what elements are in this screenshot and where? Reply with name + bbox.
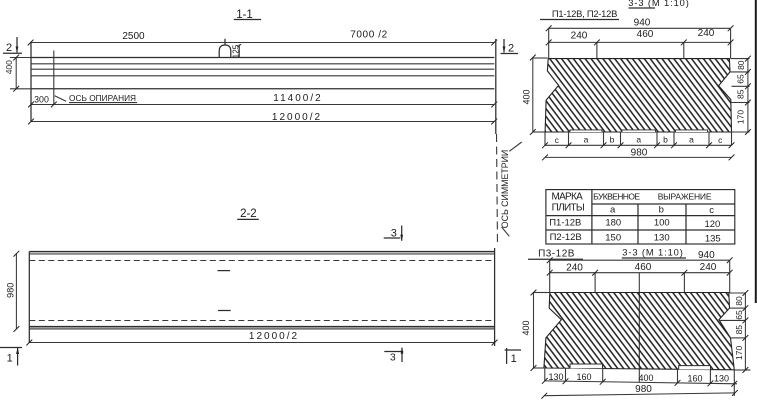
svg-text:П1-12В, П2-12В: П1-12В, П2-12В: [552, 8, 617, 19]
svg-text:170: 170: [734, 346, 744, 360]
svg-text:12000/2: 12000/2: [272, 112, 322, 123]
svg-text:160: 160: [576, 372, 591, 382]
svg-text:а: а: [636, 135, 641, 145]
svg-text:МАРКА: МАРКА: [551, 191, 583, 202]
svg-text:980: 980: [635, 384, 652, 395]
svg-text:980: 980: [5, 283, 15, 298]
svg-text:130: 130: [654, 233, 670, 244]
svg-text:11400/2: 11400/2: [273, 93, 322, 104]
svg-text:240: 240: [571, 31, 588, 42]
svg-text:2-2: 2-2: [240, 208, 257, 220]
svg-text:400: 400: [4, 60, 14, 74]
svg-text:100: 100: [654, 218, 670, 229]
svg-text:ОСЬ ОПИРАНИЯ: ОСЬ ОПИРАНИЯ: [69, 93, 136, 103]
svg-text:135: 135: [705, 234, 721, 245]
svg-text:240: 240: [566, 263, 583, 274]
svg-text:940: 940: [634, 18, 651, 29]
svg-text:940: 940: [698, 250, 715, 261]
svg-text:b: b: [610, 135, 615, 145]
svg-text:65: 65: [734, 310, 744, 320]
svg-text:130: 130: [548, 372, 563, 382]
svg-text:ОСЬ СИММЕТРИИ: ОСЬ СИММЕТРИИ: [500, 150, 510, 229]
svg-text:65: 65: [736, 74, 746, 84]
svg-text:160: 160: [687, 373, 702, 383]
svg-text:12000/2: 12000/2: [249, 331, 299, 342]
svg-text:170: 170: [736, 110, 746, 124]
svg-text:120: 120: [704, 219, 720, 230]
svg-text:с: с: [555, 135, 560, 145]
svg-text:85: 85: [736, 89, 746, 99]
svg-text:2: 2: [6, 42, 12, 54]
svg-text:БУКВЕННОЕ: БУКВЕННОЕ: [593, 192, 640, 202]
svg-text:980: 980: [631, 147, 648, 158]
svg-text:3-3 (М 1:10): 3-3 (М 1:10): [628, 0, 689, 8]
svg-text:а: а: [689, 135, 694, 145]
svg-text:460: 460: [637, 29, 654, 40]
svg-text:П2-12В: П2-12В: [550, 232, 582, 243]
svg-text:с: с: [718, 135, 723, 145]
svg-text:180: 180: [605, 218, 621, 229]
svg-text:85: 85: [734, 325, 744, 335]
svg-text:ПЛИТЫ: ПЛИТЫ: [552, 202, 585, 213]
svg-text:460: 460: [635, 262, 652, 273]
svg-text:7000 /2: 7000 /2: [350, 30, 388, 41]
svg-text:2: 2: [508, 43, 514, 55]
svg-text:150: 150: [605, 233, 621, 244]
svg-text:300: 300: [34, 95, 49, 105]
svg-text:3: 3: [390, 352, 396, 364]
svg-text:П3-12В: П3-12В: [538, 249, 575, 260]
svg-text:ВЫРАЖЕНИЕ: ВЫРАЖЕНИЕ: [658, 192, 712, 202]
svg-text:с: с: [709, 205, 714, 216]
svg-text:125: 125: [231, 44, 240, 58]
svg-text:b: b: [663, 135, 668, 145]
svg-text:b: b: [659, 204, 664, 215]
svg-text:130: 130: [714, 374, 729, 384]
svg-text:240: 240: [698, 28, 715, 39]
svg-text:80: 80: [736, 60, 746, 70]
svg-text:240: 240: [700, 262, 717, 273]
svg-text:80: 80: [734, 296, 744, 306]
svg-text:а: а: [584, 135, 589, 145]
svg-text:а: а: [610, 205, 616, 216]
svg-text:400: 400: [521, 320, 531, 335]
svg-text:1: 1: [511, 353, 517, 365]
svg-text:400: 400: [638, 373, 653, 383]
svg-text:3-3 (М 1:10): 3-3 (М 1:10): [622, 247, 683, 257]
svg-text:400: 400: [522, 89, 532, 104]
svg-text:1: 1: [7, 353, 13, 365]
svg-text:2500: 2500: [122, 31, 145, 42]
svg-text:П1-12В: П1-12В: [549, 218, 581, 229]
